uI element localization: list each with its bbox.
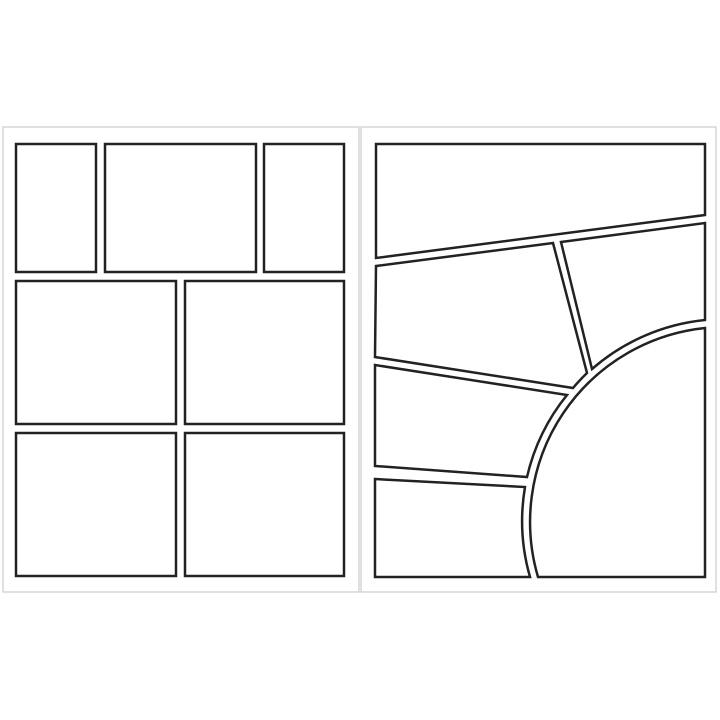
comic-template-spread	[0, 0, 720, 720]
left-panel-6-bottom-left	[16, 433, 176, 576]
spread-svg	[0, 0, 720, 720]
right-panel-5-bottom-left	[375, 479, 530, 577]
left-panel-1-tall	[16, 144, 96, 272]
left-panel-3-tall	[264, 144, 344, 272]
left-panel-2-wide	[105, 144, 256, 272]
left-panel-5-mid-right	[185, 281, 344, 424]
left-panel-4-mid-left	[16, 281, 176, 424]
left-panel-7-bottom-right	[185, 433, 344, 576]
